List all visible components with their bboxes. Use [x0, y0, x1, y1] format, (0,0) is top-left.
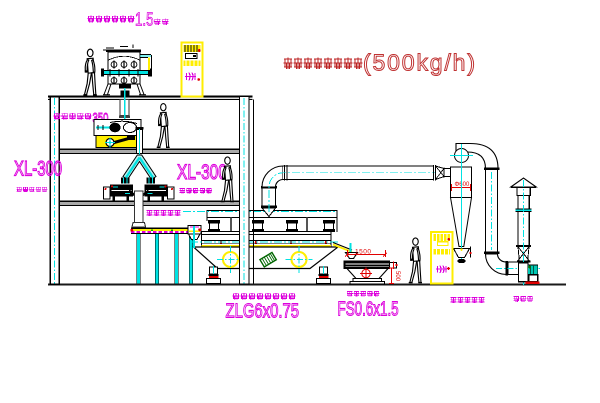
svg-text:(500kg/h): (500kg/h) — [363, 50, 475, 76]
svg-text:1500: 1500 — [355, 249, 371, 256]
svg-text:500: 500 — [394, 271, 400, 282]
svg-text:FS0.6x1.5: FS0.6x1.5 — [338, 297, 399, 321]
svg-text:ZLG6x0.75: ZLG6x0.75 — [226, 299, 300, 322]
svg-text:Φ600: Φ600 — [455, 182, 470, 188]
svg-text:XL-300: XL-300 — [177, 159, 227, 183]
svg-text:1.5: 1.5 — [135, 9, 154, 30]
svg-text:XL-300: XL-300 — [14, 157, 62, 180]
